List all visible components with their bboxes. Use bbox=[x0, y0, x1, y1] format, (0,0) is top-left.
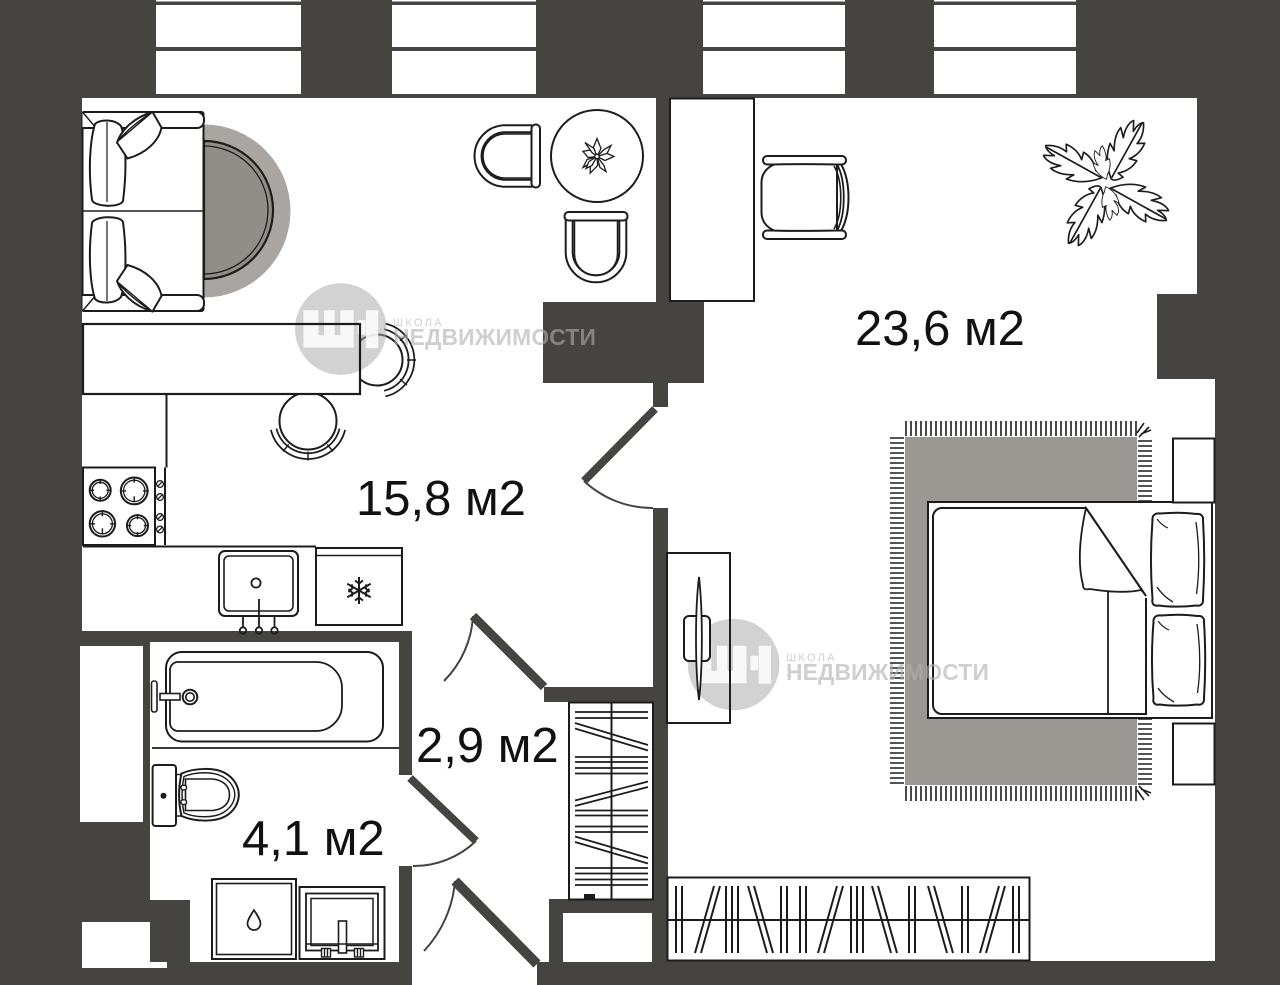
svg-text:23,6 м2: 23,6 м2 bbox=[855, 302, 1025, 356]
svg-text:4,1 м2: 4,1 м2 bbox=[242, 812, 385, 866]
svg-text:15,8 м2: 15,8 м2 bbox=[356, 472, 526, 526]
svg-text:НЕДВИЖИМОСТИ: НЕДВИЖИМОСТИ bbox=[786, 659, 989, 685]
svg-text:НЕДВИЖИМОСТИ: НЕДВИЖИМОСТИ bbox=[393, 324, 596, 350]
svg-text:2,9 м2: 2,9 м2 bbox=[416, 719, 559, 773]
